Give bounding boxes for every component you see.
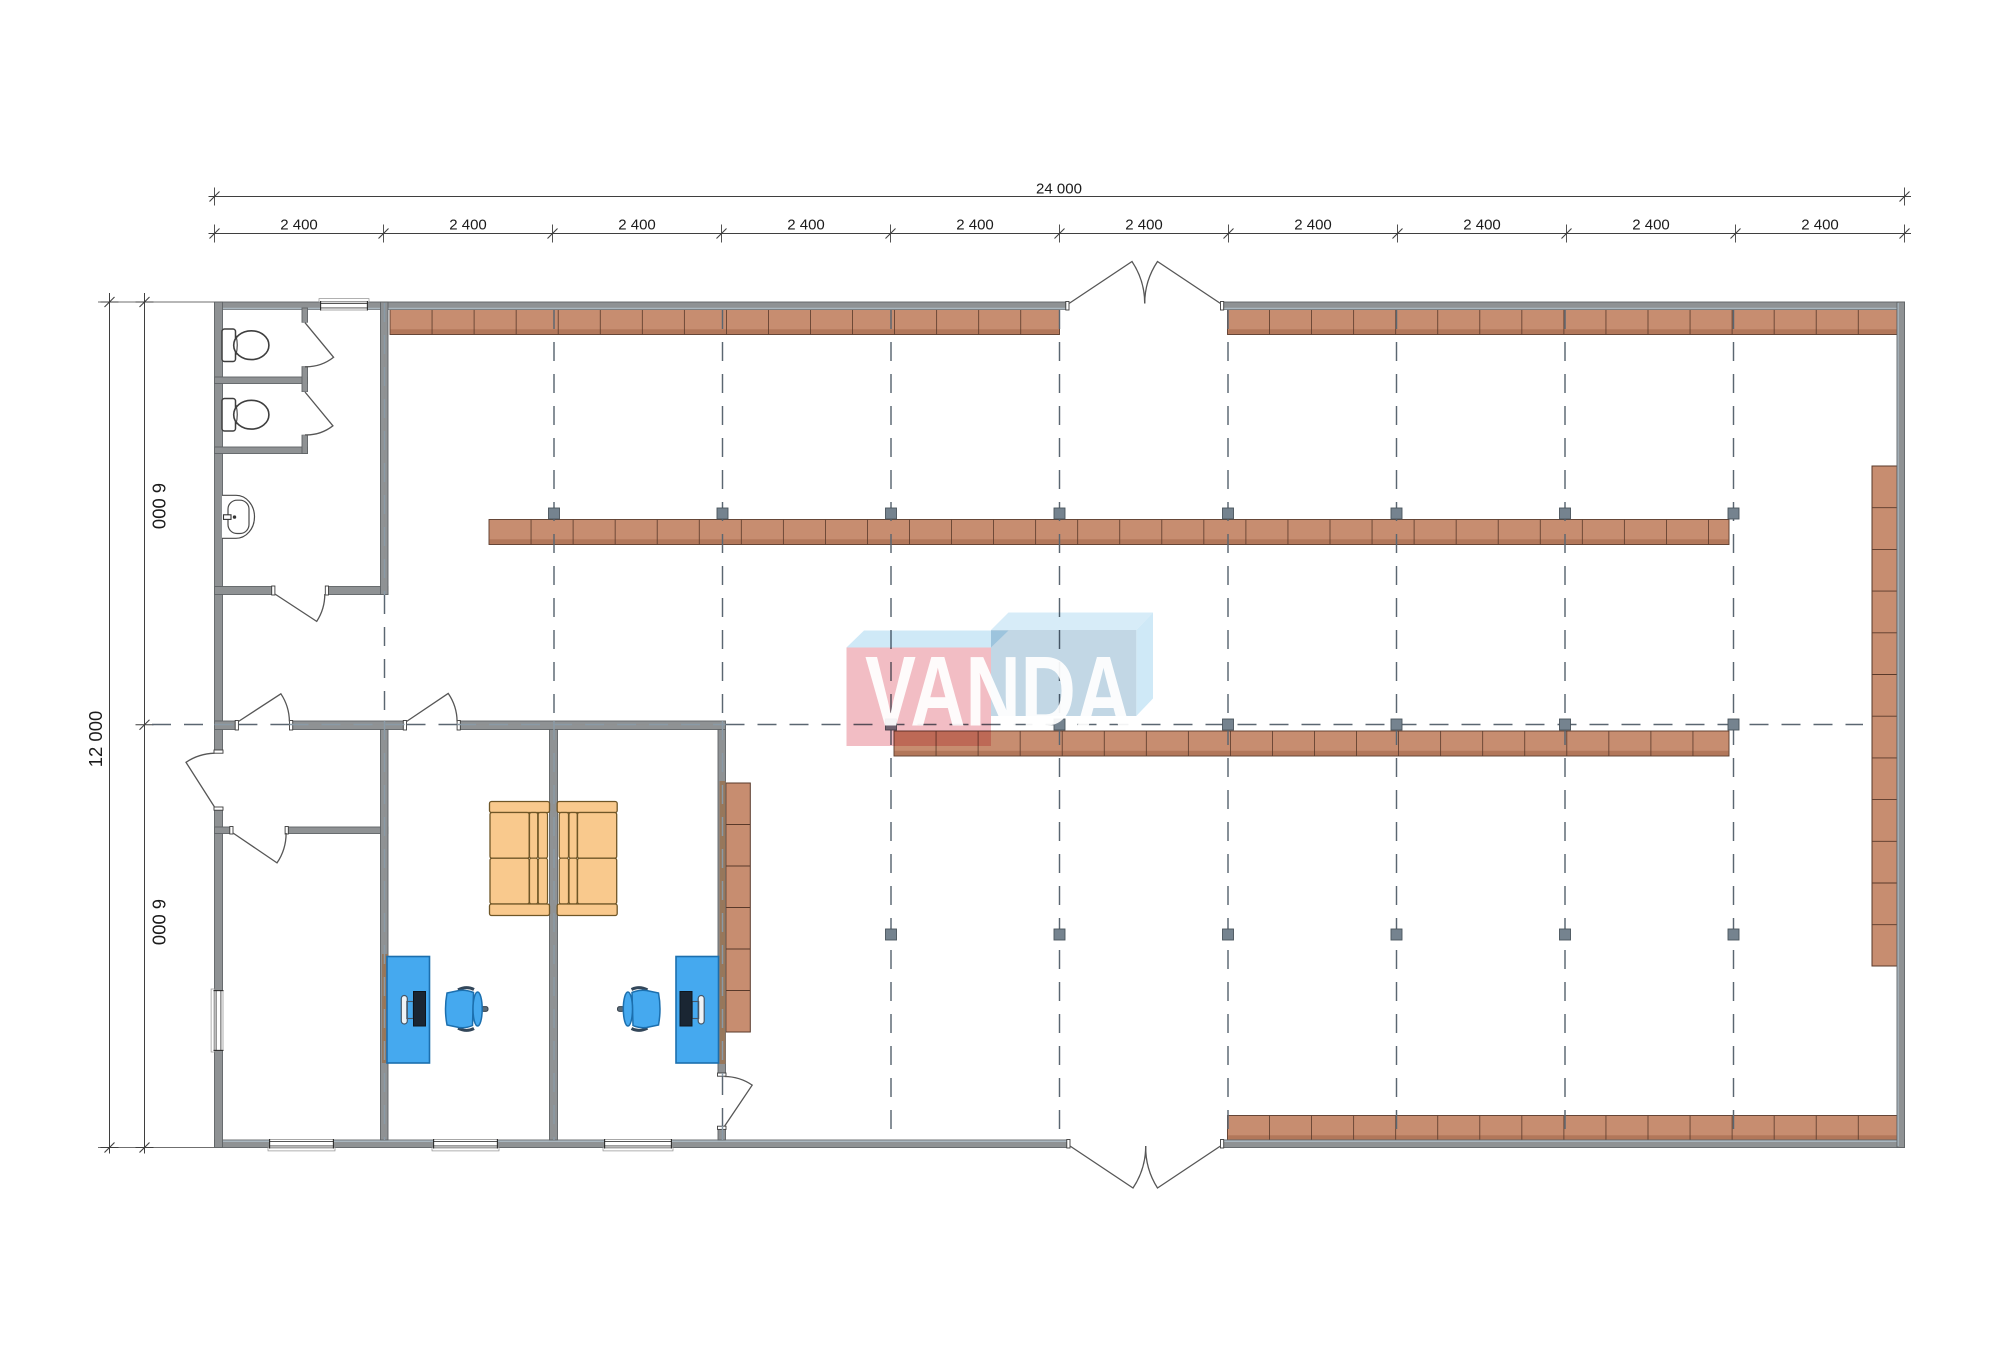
svg-text:VANDA: VANDA (865, 636, 1131, 747)
svg-text:2 400: 2 400 (280, 217, 318, 234)
svg-text:2 400: 2 400 (787, 217, 825, 234)
svg-text:2 400: 2 400 (1463, 217, 1501, 234)
svg-text:2 400: 2 400 (449, 217, 487, 234)
svg-text:24 000: 24 000 (1036, 181, 1082, 198)
svg-text:6 000: 6 000 (149, 899, 170, 945)
svg-text:6 000: 6 000 (149, 483, 170, 529)
svg-text:2 400: 2 400 (1125, 217, 1163, 234)
svg-text:2 400: 2 400 (1632, 217, 1670, 234)
svg-text:12 000: 12 000 (85, 711, 106, 768)
svg-text:2 400: 2 400 (956, 217, 994, 234)
svg-text:2 400: 2 400 (618, 217, 656, 234)
svg-text:2 400: 2 400 (1801, 217, 1839, 234)
svg-text:2 400: 2 400 (1294, 217, 1332, 234)
